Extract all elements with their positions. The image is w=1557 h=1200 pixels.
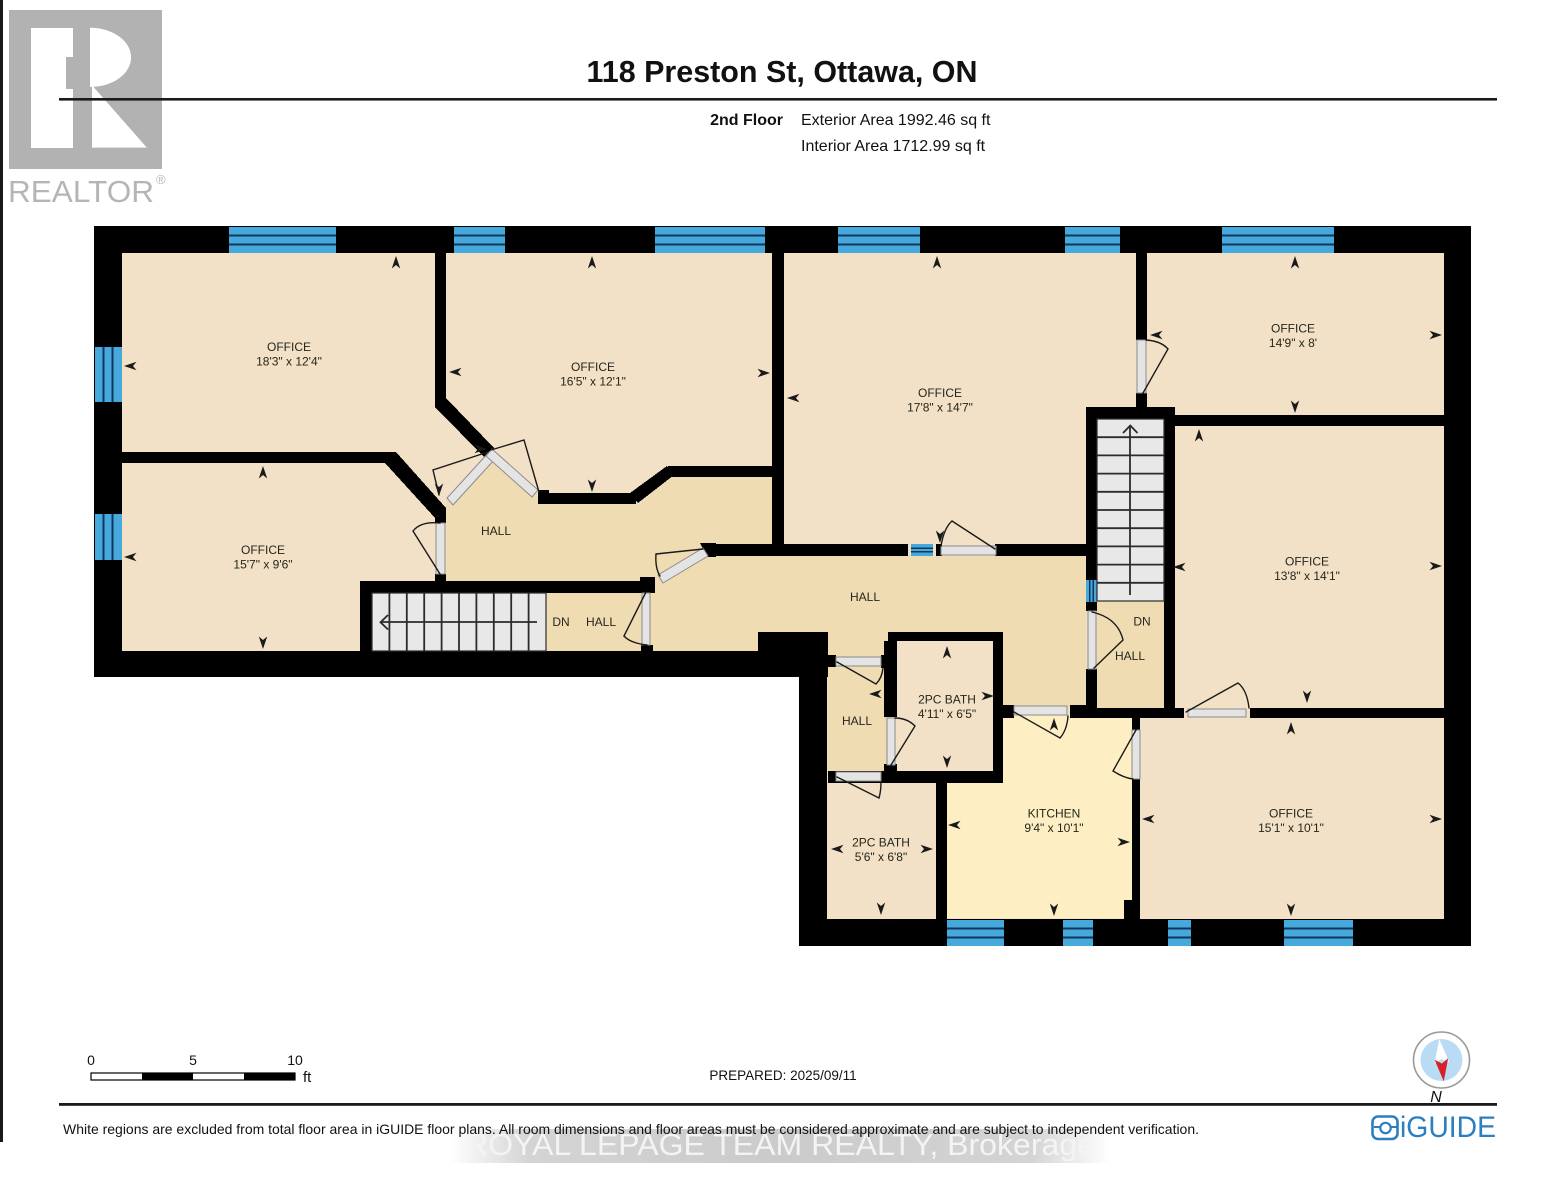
svg-text:PREPARED: 2025/09/11: PREPARED: 2025/09/11 [709,1068,856,1083]
svg-text:118 Preston St, Ottawa, ON: 118 Preston St, Ottawa, ON [587,54,978,89]
svg-text:White regions are excluded fro: White regions are excluded from total fl… [63,1122,1199,1137]
svg-text:0: 0 [87,1052,95,1068]
svg-text:5: 5 [189,1052,197,1068]
svg-text:5'6" x 6'8": 5'6" x 6'8" [855,850,907,864]
svg-text:2PC BATH: 2PC BATH [918,693,976,707]
svg-text:OFFICE: OFFICE [241,543,285,557]
svg-text:ft: ft [303,1069,312,1086]
svg-text:10: 10 [287,1052,303,1068]
svg-text:iGUIDE: iGUIDE [1400,1111,1496,1144]
svg-text:13'8" x 14'1": 13'8" x 14'1" [1274,569,1340,583]
svg-text:2nd Floor: 2nd Floor [710,112,783,129]
svg-text:OFFICE: OFFICE [1285,555,1329,569]
svg-text:OFFICE: OFFICE [1269,807,1313,821]
svg-text:OFFICE: OFFICE [267,340,311,354]
svg-text:4'11" x 6'5": 4'11" x 6'5" [918,707,976,721]
svg-text:HALL: HALL [850,590,880,604]
svg-text:DN: DN [1133,615,1150,629]
svg-text:OFFICE: OFFICE [1271,322,1315,336]
svg-text:HALL: HALL [1115,649,1145,663]
svg-text:9'4" x 10'1": 9'4" x 10'1" [1024,821,1083,835]
svg-text:17'8" x 14'7": 17'8" x 14'7" [907,401,973,415]
svg-text:®: ® [156,172,166,187]
svg-text:16'5" x 12'1": 16'5" x 12'1" [560,375,626,389]
svg-text:14'9" x 8': 14'9" x 8' [1269,336,1317,350]
svg-text:REALTOR: REALTOR [8,174,154,209]
svg-text:18'3" x 12'4": 18'3" x 12'4" [256,355,322,369]
svg-text:DN: DN [552,615,569,629]
svg-text:HALL: HALL [586,615,616,629]
svg-text:Exterior Area 1992.46 sq ft: Exterior Area 1992.46 sq ft [801,112,991,129]
svg-text:OFFICE: OFFICE [918,386,962,400]
svg-text:HALL: HALL [481,524,511,538]
svg-text:15'7" x 9'6": 15'7" x 9'6" [233,558,292,572]
svg-text:2PC BATH: 2PC BATH [852,836,910,850]
svg-text:KITCHEN: KITCHEN [1028,807,1081,821]
svg-text:Interior Area 1712.99 sq ft: Interior Area 1712.99 sq ft [801,138,986,155]
svg-text:HALL: HALL [842,714,872,728]
svg-text:OFFICE: OFFICE [571,360,615,374]
svg-text:15'1" x 10'1": 15'1" x 10'1" [1258,821,1324,835]
